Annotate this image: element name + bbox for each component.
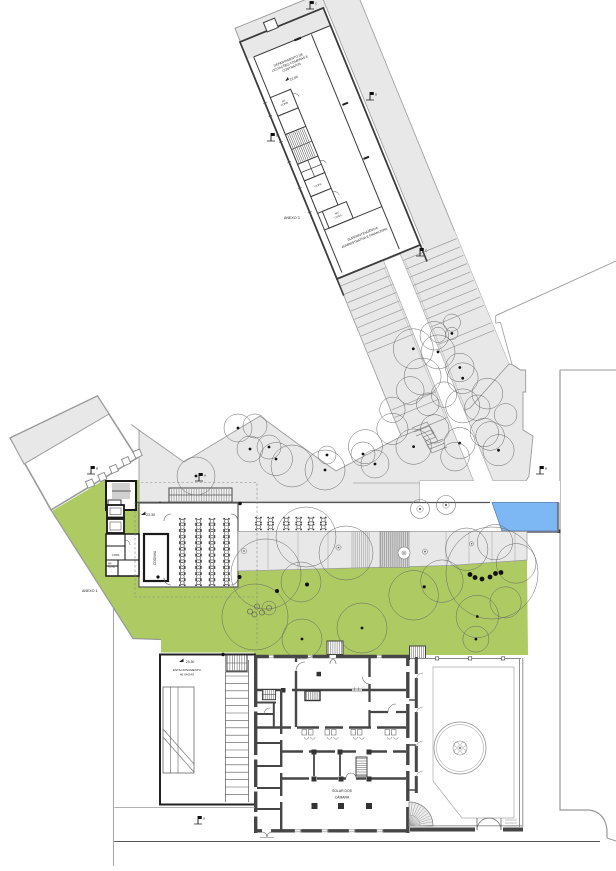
- svg-text:ANEXO 3: ANEXO 3: [284, 216, 300, 220]
- svg-text:A: A: [203, 817, 205, 821]
- svg-text:40 VAGAS: 40 VAGAS: [180, 673, 194, 677]
- svg-text:COZINHA: COZINHA: [153, 550, 157, 565]
- svg-text:SOLAR DOS: SOLAR DOS: [332, 789, 353, 793]
- svg-text:23.30: 23.30: [186, 660, 195, 664]
- svg-text:ANEXO 1: ANEXO 1: [82, 589, 98, 593]
- svg-text:ESTACIONAMENTO: ESTACIONAMENTO: [173, 668, 202, 672]
- svg-text:COPA: COPA: [112, 553, 120, 557]
- svg-text:B: B: [545, 467, 547, 471]
- svg-text:CÂMARA: CÂMARA: [335, 796, 350, 800]
- svg-text:COND: COND: [108, 566, 116, 569]
- svg-text:A: A: [204, 474, 206, 478]
- svg-text:B: B: [96, 467, 98, 471]
- svg-text:23.30: 23.30: [146, 513, 155, 517]
